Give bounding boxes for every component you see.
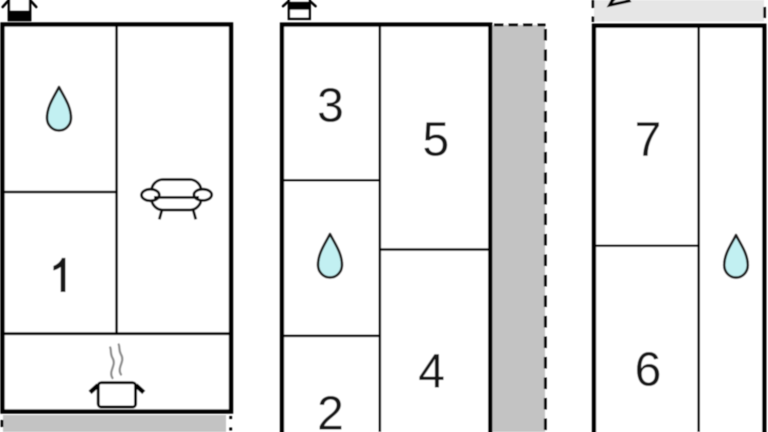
svg-text:3: 3 bbox=[317, 79, 344, 132]
svg-text:2: 2 bbox=[317, 387, 344, 432]
svg-text:6: 6 bbox=[635, 343, 662, 396]
svg-text:5: 5 bbox=[422, 113, 449, 166]
svg-text:7: 7 bbox=[635, 113, 662, 166]
svg-text:4: 4 bbox=[418, 346, 445, 399]
